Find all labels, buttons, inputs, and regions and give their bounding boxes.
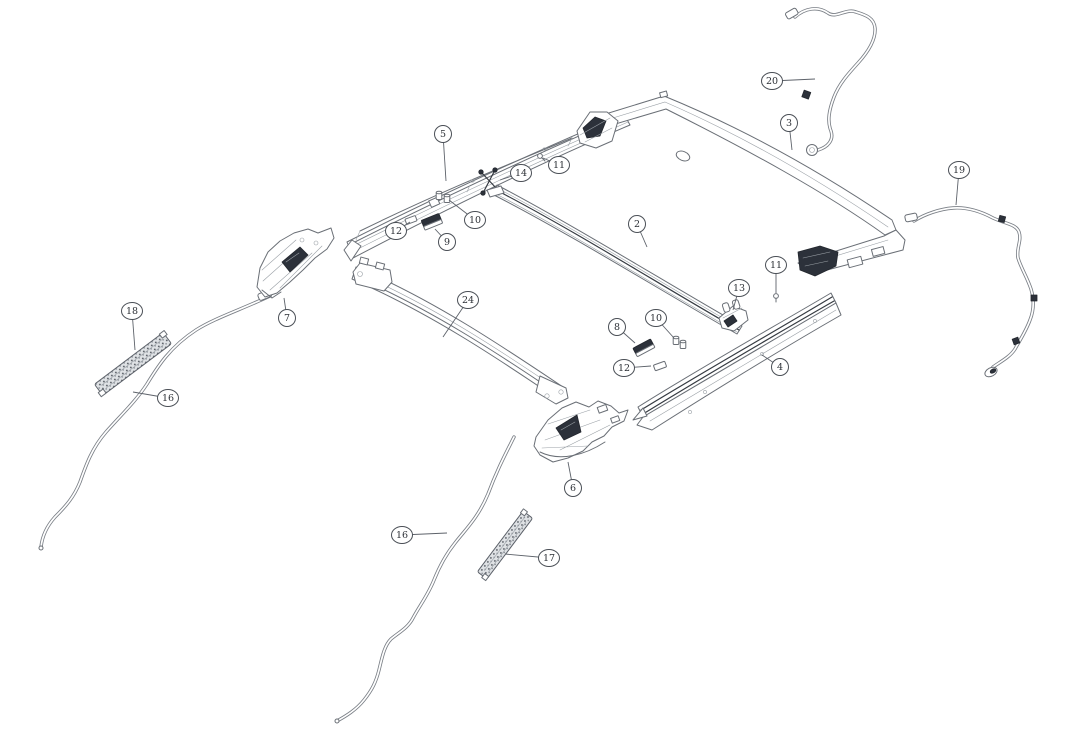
- callout-11-10[interactable]: 11: [766, 257, 787, 294]
- callout-7-12[interactable]: 7: [279, 298, 296, 327]
- frame-corner-bracket-right: [798, 246, 838, 276]
- callout-8-15[interactable]: 8: [609, 319, 636, 344]
- callout-number: 4: [777, 362, 783, 373]
- callout-number: 5: [440, 129, 446, 140]
- callout-number: 17: [543, 553, 555, 564]
- clip-pins-rear: [673, 336, 686, 348]
- callout-number: 11: [770, 260, 782, 271]
- callout-10-16[interactable]: 10: [646, 310, 675, 339]
- drain-hose-top-right: [785, 8, 875, 156]
- callout-16-21[interactable]: 16: [392, 527, 448, 544]
- slide-block-rear: [633, 339, 655, 357]
- callout-19-9[interactable]: 19: [949, 162, 970, 206]
- callout-17-22[interactable]: 17: [505, 550, 560, 567]
- callout-12-17[interactable]: 12: [614, 360, 652, 377]
- callout-number: 16: [162, 393, 174, 404]
- callout-number: 16: [396, 530, 408, 541]
- corner-bracket-front-left: [257, 228, 334, 298]
- callout-2-6[interactable]: 2: [629, 216, 648, 248]
- callout-number: 13: [733, 283, 745, 294]
- drain-hose-rear-right: [335, 437, 514, 723]
- guide-rail: [494, 185, 742, 334]
- callout-number: 14: [515, 168, 527, 179]
- callout-number: 10: [650, 313, 662, 324]
- roof-frame: [577, 91, 905, 276]
- screw-rear: [774, 294, 779, 302]
- parts-diagram: 51114101292320191113718248101241661617: [0, 0, 1080, 732]
- callout-number: 19: [953, 165, 965, 176]
- flat-clip-rear: [653, 361, 666, 371]
- callout-number: 20: [766, 76, 778, 87]
- hose-clip: [998, 215, 1005, 222]
- callout-18-13[interactable]: 18: [122, 303, 143, 351]
- callout-layer: 51114101292320191113718248101241661617: [122, 73, 970, 567]
- callout-number: 12: [618, 363, 630, 374]
- callout-number: 9: [444, 237, 450, 248]
- seal-strip-center: [475, 509, 534, 581]
- callout-10-3[interactable]: 10: [449, 200, 486, 229]
- callout-3-7[interactable]: 3: [781, 115, 798, 151]
- callout-20-8[interactable]: 20: [762, 73, 816, 90]
- callout-number: 18: [126, 306, 138, 317]
- callout-number: 11: [553, 160, 565, 171]
- callout-number: 2: [634, 219, 640, 230]
- callout-5-0[interactable]: 5: [435, 126, 452, 182]
- hose-clip: [1031, 295, 1037, 301]
- callout-number: 6: [570, 483, 576, 494]
- callout-4-18[interactable]: 4: [762, 355, 789, 376]
- callout-12-4[interactable]: 12: [386, 222, 411, 240]
- wind-deflector: [352, 257, 568, 404]
- callout-9-5[interactable]: 9: [435, 229, 456, 251]
- callout-number: 24: [462, 295, 474, 306]
- callout-number: 8: [614, 322, 620, 333]
- drain-hose-right: [905, 208, 1037, 379]
- rail-end-bracket: [719, 299, 748, 331]
- callout-number: 7: [284, 313, 290, 324]
- callout-number: 3: [786, 118, 792, 129]
- hose-clip: [802, 90, 811, 99]
- corner-bracket-rear: [534, 401, 628, 462]
- drain-hose-front-left: [39, 290, 272, 550]
- callout-6-20[interactable]: 6: [565, 462, 582, 497]
- callout-number: 10: [469, 215, 481, 226]
- callout-number: 12: [390, 226, 402, 237]
